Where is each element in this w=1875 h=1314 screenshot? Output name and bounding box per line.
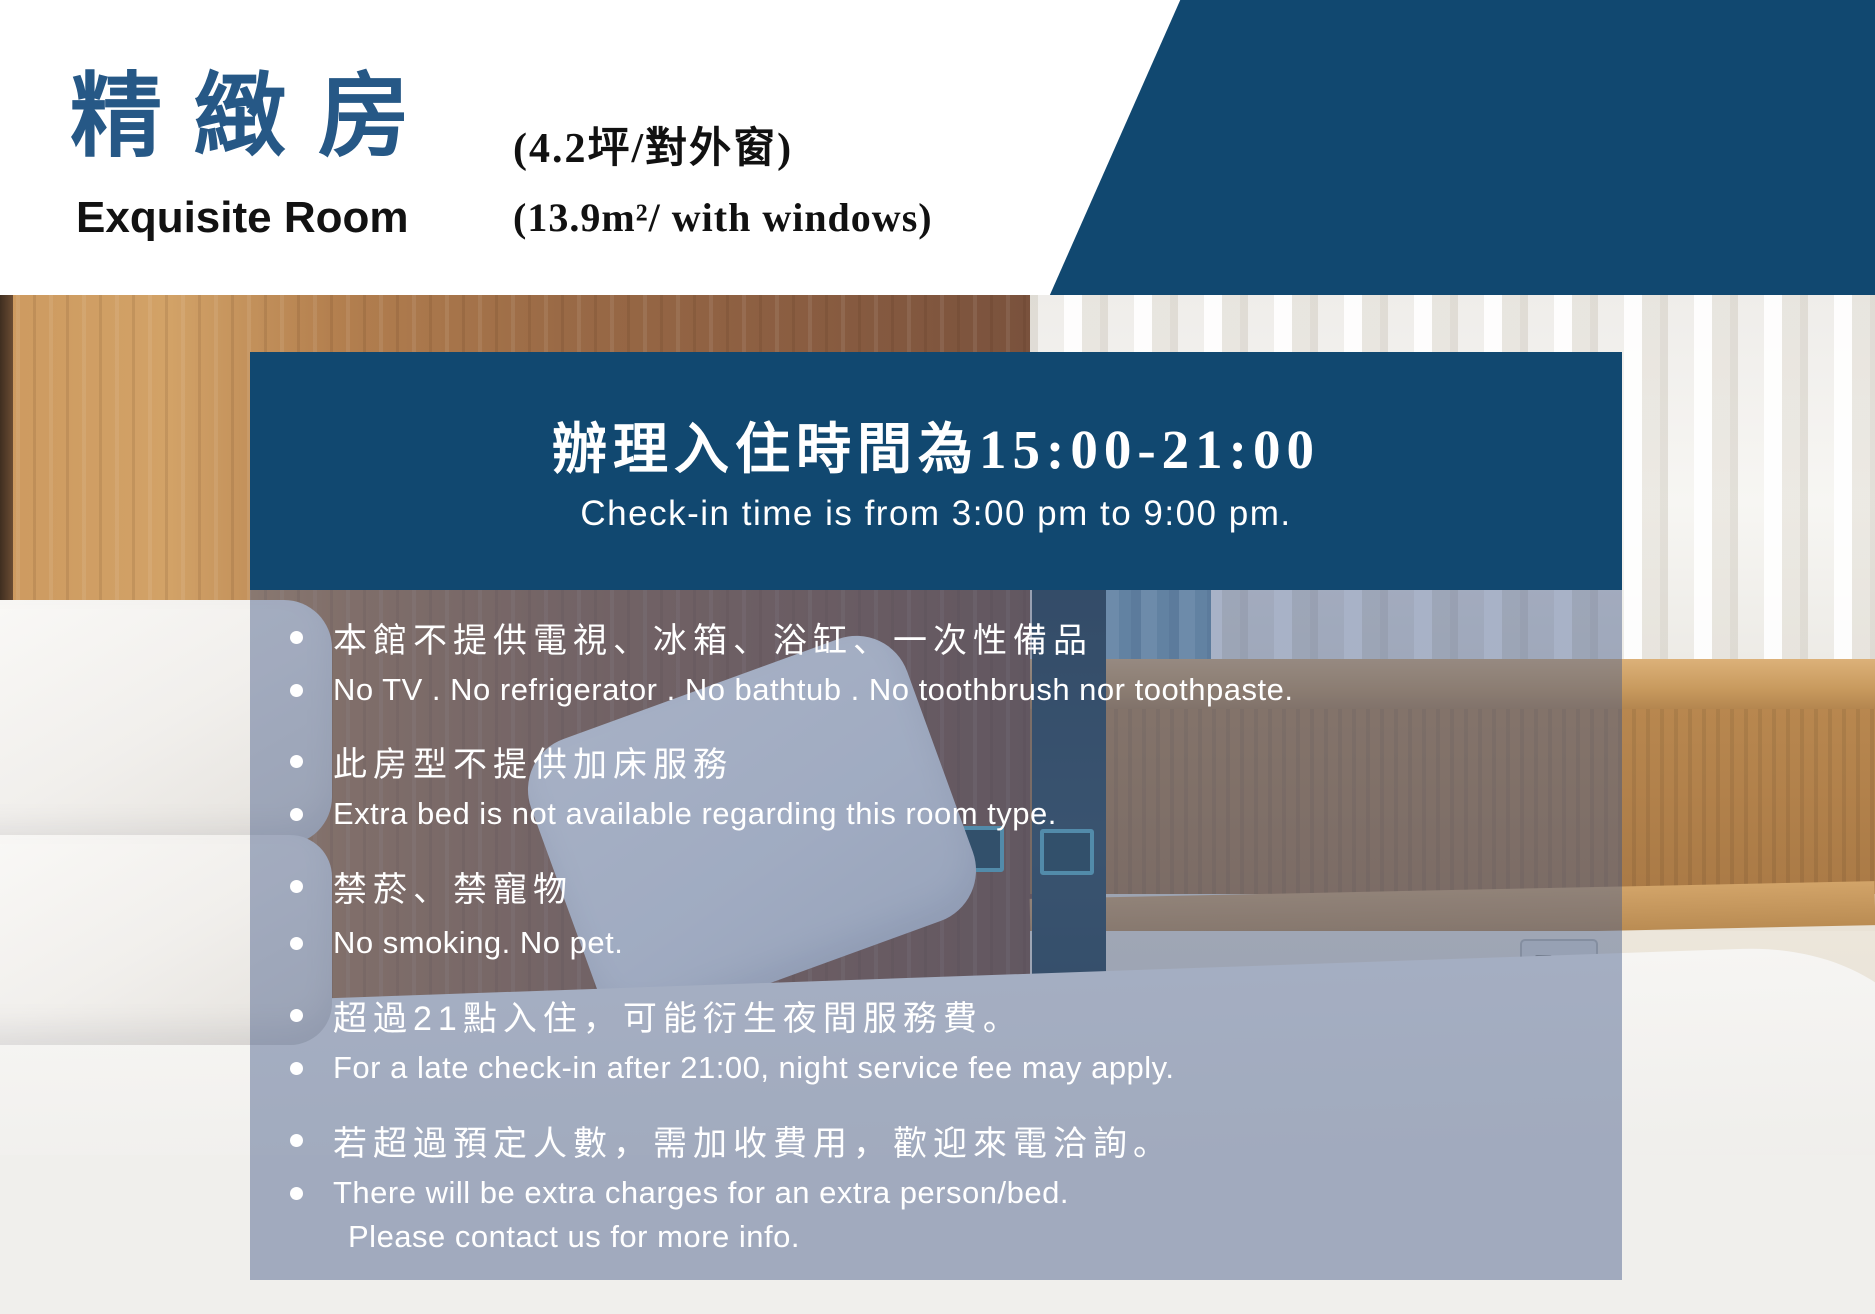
checkin-banner: 辦理入住時間為15:00-21:00 Check-in time is from…	[250, 352, 1622, 590]
policy-item-en: For a late check-in after 21:00, night s…	[290, 1045, 1175, 1091]
policy-text: Please contact us for more info.	[348, 1219, 800, 1255]
room-size-zh: (4.2坪/對外窗)	[513, 122, 793, 176]
bullet-icon	[290, 880, 303, 893]
bullet-icon	[290, 808, 303, 821]
policy-item-en-continued: Please contact us for more info.	[348, 1214, 800, 1260]
policy-text: There will be extra charges for an extra…	[333, 1175, 1069, 1211]
room-name-zh: 精緻房	[70, 62, 442, 170]
policy-item-en: No smoking. No pet.	[290, 920, 623, 966]
policy-item-zh: 超過21點入住，可能衍生夜間服務費。	[290, 992, 1023, 1038]
bullet-icon	[290, 684, 303, 697]
policy-text: 本館不提供電視、冰箱、浴缸、一次性備品	[333, 613, 1093, 662]
room-name-en: Exquisite Room	[76, 192, 409, 244]
bullet-icon	[290, 755, 303, 768]
bullet-icon	[290, 937, 303, 950]
header-section: 精緻房 Exquisite Room (4.2坪/對外窗) (13.9m²/ w…	[0, 0, 1875, 295]
policy-item-zh: 此房型不提供加床服務	[290, 738, 733, 784]
policy-text: 此房型不提供加床服務	[333, 737, 733, 786]
policy-item-zh: 禁菸、禁寵物	[290, 863, 573, 909]
policy-item-en: Extra bed is not available regarding thi…	[290, 791, 1057, 837]
policy-text: 禁菸、禁寵物	[333, 862, 573, 911]
policy-text: For a late check-in after 21:00, night s…	[333, 1050, 1175, 1086]
policy-item-zh: 本館不提供電視、冰箱、浴缸、一次性備品	[290, 614, 1093, 660]
corner-accent-shape	[1000, 0, 1875, 295]
checkin-subtitle-en: Check-in time is from 3:00 pm to 9:00 pm…	[250, 492, 1622, 536]
checkin-title-zh: 辦理入住時間為15:00-21:00	[250, 418, 1622, 482]
bullet-icon	[290, 1134, 303, 1147]
policy-text: No smoking. No pet.	[333, 925, 623, 961]
bullet-icon	[290, 1009, 303, 1022]
bullet-icon	[290, 631, 303, 644]
policy-item-zh: 若超過預定人數，需加收費用，歡迎來電洽詢。	[290, 1117, 1173, 1163]
policy-text: No TV . No refrigerator . No bathtub . N…	[333, 672, 1294, 708]
bullet-icon	[290, 1062, 303, 1075]
policy-text: 超過21點入住，可能衍生夜間服務費。	[333, 991, 1023, 1040]
room-size-en: (13.9m²/ with windows)	[513, 192, 933, 244]
policy-text: 若超過預定人數，需加收費用，歡迎來電洽詢。	[333, 1116, 1173, 1165]
policy-item-en: There will be extra charges for an extra…	[290, 1170, 1069, 1216]
room-info-poster: 辦理入住時間為15:00-21:00 Check-in time is from…	[0, 0, 1875, 1314]
bullet-icon	[290, 1187, 303, 1200]
policy-item-en: No TV . No refrigerator . No bathtub . N…	[290, 667, 1294, 713]
policy-text: Extra bed is not available regarding thi…	[333, 796, 1057, 832]
